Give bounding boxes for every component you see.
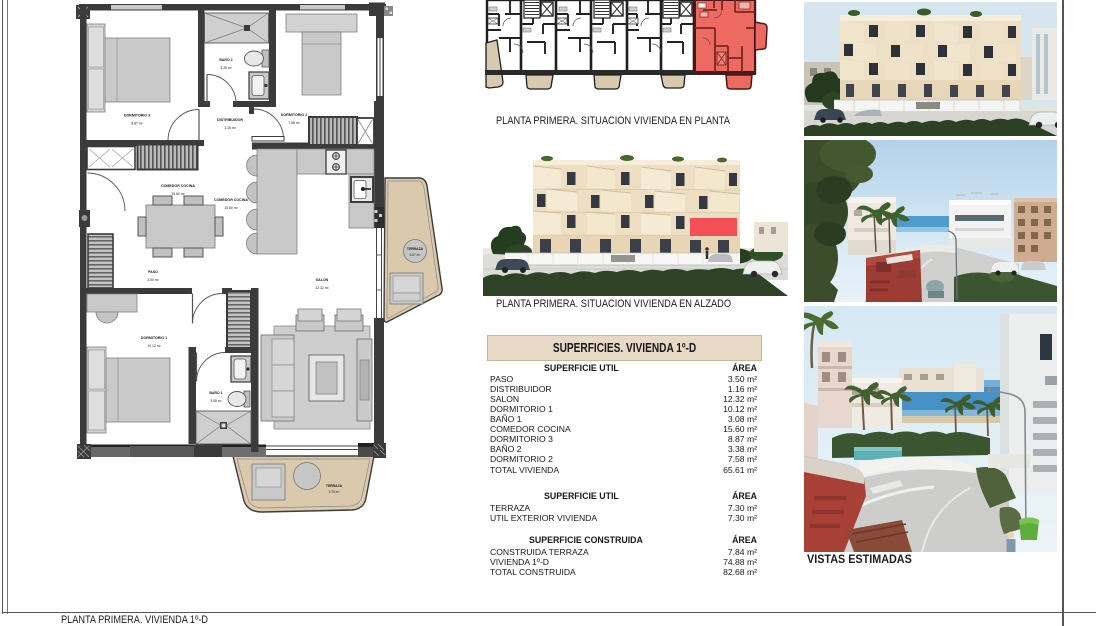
svg-text:TERRAZA: TERRAZA	[407, 247, 424, 251]
svg-text:DISTRIBUIDOR: DISTRIBUIDOR	[217, 118, 243, 122]
svg-text:DORMITORIO 3: DORMITORIO 3	[124, 114, 150, 118]
svg-text:DORMITORIO 2: DORMITORIO 2	[281, 113, 307, 117]
svg-text:COMEDOR COCINA: COMEDOR COCINA	[214, 198, 248, 202]
svg-text:SALON: SALON	[316, 278, 329, 282]
svg-text:6.57 m²: 6.57 m²	[410, 253, 421, 257]
svg-text:10.12 m²: 10.12 m²	[147, 344, 161, 348]
svg-text:BAÑO 1: BAÑO 1	[209, 390, 222, 395]
svg-text:12.32 m²: 12.32 m²	[315, 286, 329, 290]
svg-text:3.50 m²: 3.50 m²	[147, 278, 159, 282]
svg-text:3.08 m²: 3.08 m²	[210, 399, 222, 403]
svg-text:1.16 m²: 1.16 m²	[224, 126, 236, 130]
svg-text:7.58 m²: 7.58 m²	[288, 121, 300, 125]
svg-text:DORMITORIO 1: DORMITORIO 1	[141, 336, 167, 340]
svg-text:COMEDOR COCINA: COMEDOR COCINA	[161, 184, 195, 188]
svg-text:TERRAZA: TERRAZA	[326, 484, 343, 488]
svg-text:15.60 m²: 15.60 m²	[224, 206, 238, 210]
svg-text:PASO: PASO	[148, 270, 158, 274]
svg-text:15.60 m²: 15.60 m²	[171, 192, 185, 196]
svg-text:3.38 m²: 3.38 m²	[220, 66, 232, 70]
svg-text:3.75 m²: 3.75 m²	[329, 490, 340, 494]
svg-text:BAÑO 2: BAÑO 2	[219, 57, 232, 62]
svg-text:8.87 m²: 8.87 m²	[131, 122, 143, 126]
